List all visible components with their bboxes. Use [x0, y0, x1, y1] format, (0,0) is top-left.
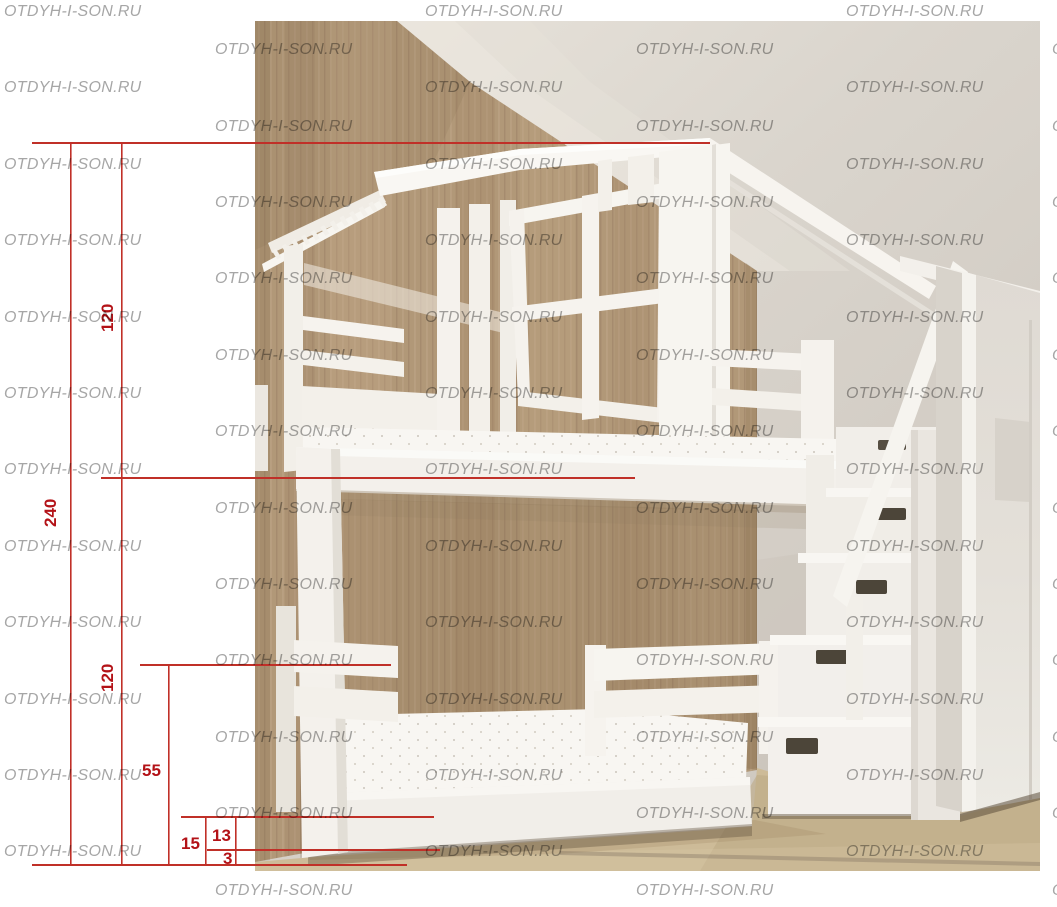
svg-text:OTDYH-I-SON.RU: OTDYH-I-SON.RU: [1052, 576, 1057, 593]
svg-text:OTDYH-I-SON.RU: OTDYH-I-SON.RU: [425, 385, 563, 402]
svg-text:OTDYH-I-SON.RU: OTDYH-I-SON.RU: [1052, 347, 1057, 364]
svg-text:OTDYH-I-SON.RU: OTDYH-I-SON.RU: [425, 843, 563, 860]
svg-text:OTDYH-I-SON.RU: OTDYH-I-SON.RU: [215, 194, 353, 211]
svg-text:OTDYH-I-SON.RU: OTDYH-I-SON.RU: [4, 538, 142, 555]
svg-text:OTDYH-I-SON.RU: OTDYH-I-SON.RU: [846, 767, 984, 784]
svg-text:OTDYH-I-SON.RU: OTDYH-I-SON.RU: [1052, 729, 1057, 746]
svg-text:OTDYH-I-SON.RU: OTDYH-I-SON.RU: [1052, 882, 1057, 899]
svg-text:OTDYH-I-SON.RU: OTDYH-I-SON.RU: [846, 309, 984, 326]
svg-text:OTDYH-I-SON.RU: OTDYH-I-SON.RU: [636, 118, 774, 135]
svg-text:OTDYH-I-SON.RU: OTDYH-I-SON.RU: [846, 691, 984, 708]
svg-text:OTDYH-I-SON.RU: OTDYH-I-SON.RU: [846, 538, 984, 555]
svg-text:OTDYH-I-SON.RU: OTDYH-I-SON.RU: [1052, 41, 1057, 58]
svg-text:OTDYH-I-SON.RU: OTDYH-I-SON.RU: [425, 767, 563, 784]
svg-text:OTDYH-I-SON.RU: OTDYH-I-SON.RU: [846, 232, 984, 249]
svg-text:OTDYH-I-SON.RU: OTDYH-I-SON.RU: [1052, 500, 1057, 517]
svg-text:OTDYH-I-SON.RU: OTDYH-I-SON.RU: [636, 270, 774, 287]
svg-text:OTDYH-I-SON.RU: OTDYH-I-SON.RU: [215, 882, 353, 899]
svg-text:OTDYH-I-SON.RU: OTDYH-I-SON.RU: [636, 729, 774, 746]
svg-text:OTDYH-I-SON.RU: OTDYH-I-SON.RU: [4, 3, 142, 20]
svg-text:OTDYH-I-SON.RU: OTDYH-I-SON.RU: [1052, 194, 1057, 211]
svg-text:OTDYH-I-SON.RU: OTDYH-I-SON.RU: [1052, 118, 1057, 135]
svg-text:240: 240: [41, 499, 60, 527]
svg-text:OTDYH-I-SON.RU: OTDYH-I-SON.RU: [4, 691, 142, 708]
svg-text:OTDYH-I-SON.RU: OTDYH-I-SON.RU: [4, 232, 142, 249]
svg-text:OTDYH-I-SON.RU: OTDYH-I-SON.RU: [4, 767, 142, 784]
svg-text:OTDYH-I-SON.RU: OTDYH-I-SON.RU: [4, 79, 142, 96]
svg-text:OTDYH-I-SON.RU: OTDYH-I-SON.RU: [1052, 270, 1057, 287]
svg-text:OTDYH-I-SON.RU: OTDYH-I-SON.RU: [636, 194, 774, 211]
svg-text:OTDYH-I-SON.RU: OTDYH-I-SON.RU: [215, 729, 353, 746]
svg-text:3: 3: [223, 849, 232, 868]
svg-text:OTDYH-I-SON.RU: OTDYH-I-SON.RU: [846, 79, 984, 96]
svg-text:OTDYH-I-SON.RU: OTDYH-I-SON.RU: [425, 461, 563, 478]
svg-text:OTDYH-I-SON.RU: OTDYH-I-SON.RU: [846, 3, 984, 20]
svg-text:OTDYH-I-SON.RU: OTDYH-I-SON.RU: [4, 614, 142, 631]
svg-text:OTDYH-I-SON.RU: OTDYH-I-SON.RU: [1052, 652, 1057, 669]
svg-text:OTDYH-I-SON.RU: OTDYH-I-SON.RU: [636, 805, 774, 822]
svg-text:OTDYH-I-SON.RU: OTDYH-I-SON.RU: [1052, 423, 1057, 440]
svg-text:OTDYH-I-SON.RU: OTDYH-I-SON.RU: [425, 3, 563, 20]
svg-text:OTDYH-I-SON.RU: OTDYH-I-SON.RU: [636, 882, 774, 899]
svg-text:OTDYH-I-SON.RU: OTDYH-I-SON.RU: [425, 691, 563, 708]
svg-text:OTDYH-I-SON.RU: OTDYH-I-SON.RU: [215, 652, 353, 669]
svg-text:13: 13: [212, 826, 231, 845]
svg-text:OTDYH-I-SON.RU: OTDYH-I-SON.RU: [215, 500, 353, 517]
svg-text:15: 15: [181, 834, 200, 853]
svg-text:OTDYH-I-SON.RU: OTDYH-I-SON.RU: [4, 309, 142, 326]
svg-text:OTDYH-I-SON.RU: OTDYH-I-SON.RU: [4, 843, 142, 860]
svg-text:OTDYH-I-SON.RU: OTDYH-I-SON.RU: [215, 423, 353, 440]
svg-text:OTDYH-I-SON.RU: OTDYH-I-SON.RU: [636, 347, 774, 364]
svg-text:OTDYH-I-SON.RU: OTDYH-I-SON.RU: [636, 41, 774, 58]
svg-text:OTDYH-I-SON.RU: OTDYH-I-SON.RU: [425, 538, 563, 555]
svg-text:OTDYH-I-SON.RU: OTDYH-I-SON.RU: [1052, 805, 1057, 822]
svg-text:OTDYH-I-SON.RU: OTDYH-I-SON.RU: [215, 41, 353, 58]
svg-text:OTDYH-I-SON.RU: OTDYH-I-SON.RU: [636, 576, 774, 593]
svg-text:OTDYH-I-SON.RU: OTDYH-I-SON.RU: [215, 576, 353, 593]
svg-text:OTDYH-I-SON.RU: OTDYH-I-SON.RU: [4, 461, 142, 478]
svg-text:OTDYH-I-SON.RU: OTDYH-I-SON.RU: [425, 232, 563, 249]
svg-text:OTDYH-I-SON.RU: OTDYH-I-SON.RU: [846, 385, 984, 402]
svg-text:OTDYH-I-SON.RU: OTDYH-I-SON.RU: [636, 423, 774, 440]
svg-text:OTDYH-I-SON.RU: OTDYH-I-SON.RU: [636, 500, 774, 517]
svg-text:OTDYH-I-SON.RU: OTDYH-I-SON.RU: [215, 347, 353, 364]
svg-text:OTDYH-I-SON.RU: OTDYH-I-SON.RU: [846, 156, 984, 173]
svg-text:OTDYH-I-SON.RU: OTDYH-I-SON.RU: [425, 156, 563, 173]
svg-text:OTDYH-I-SON.RU: OTDYH-I-SON.RU: [846, 614, 984, 631]
svg-text:OTDYH-I-SON.RU: OTDYH-I-SON.RU: [215, 270, 353, 287]
svg-text:OTDYH-I-SON.RU: OTDYH-I-SON.RU: [425, 614, 563, 631]
svg-text:OTDYH-I-SON.RU: OTDYH-I-SON.RU: [4, 156, 142, 173]
svg-text:OTDYH-I-SON.RU: OTDYH-I-SON.RU: [425, 309, 563, 326]
svg-text:120: 120: [98, 664, 117, 692]
svg-text:OTDYH-I-SON.RU: OTDYH-I-SON.RU: [215, 805, 353, 822]
svg-text:55: 55: [142, 761, 161, 780]
svg-text:OTDYH-I-SON.RU: OTDYH-I-SON.RU: [425, 79, 563, 96]
svg-text:OTDYH-I-SON.RU: OTDYH-I-SON.RU: [4, 385, 142, 402]
svg-text:OTDYH-I-SON.RU: OTDYH-I-SON.RU: [846, 461, 984, 478]
svg-text:OTDYH-I-SON.RU: OTDYH-I-SON.RU: [846, 843, 984, 860]
svg-text:OTDYH-I-SON.RU: OTDYH-I-SON.RU: [636, 652, 774, 669]
svg-text:OTDYH-I-SON.RU: OTDYH-I-SON.RU: [215, 118, 353, 135]
